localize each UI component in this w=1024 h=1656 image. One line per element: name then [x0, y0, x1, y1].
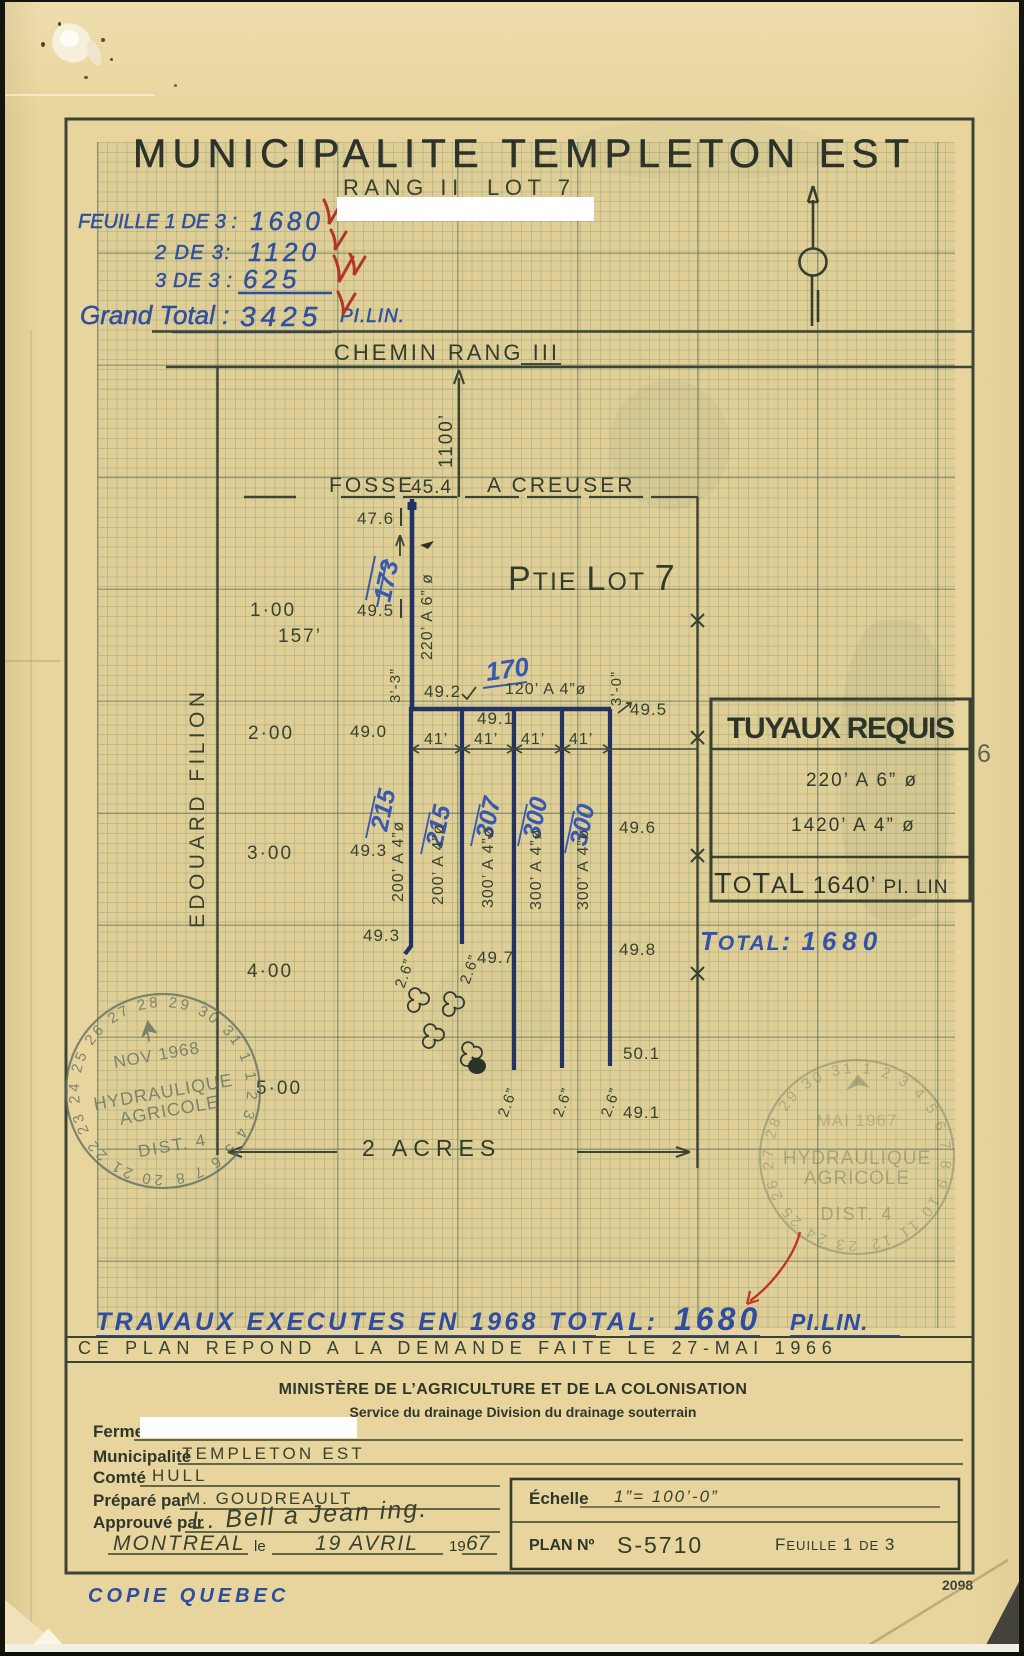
svg-text:1100’: 1100’: [436, 413, 457, 468]
svg-text:EDOUARD FILION: EDOUARD FILION: [186, 688, 209, 928]
svg-text:PTIE LOT 7: PTIE LOT 7: [508, 557, 677, 598]
svg-text:2.6”: 2.6”: [495, 1085, 521, 1119]
svg-text:Comté: Comté: [93, 1468, 146, 1487]
svg-text:1·00: 1·00: [250, 600, 296, 621]
svg-text:200’ A 4”ø: 200’ A 4”ø: [430, 824, 447, 905]
svg-text:49.8: 49.8: [619, 940, 656, 959]
svg-text:1”= 100’-0”: 1”= 100’-0”: [614, 1487, 719, 1506]
svg-text:67: 67: [466, 1532, 491, 1555]
svg-text:1420’ A 4” ø: 1420’ A 4” ø: [791, 815, 916, 836]
svg-text:DIST. 4: DIST. 4: [820, 1204, 893, 1224]
svg-text:DIST. 4: DIST. 4: [137, 1130, 209, 1161]
svg-text:6: 6: [977, 740, 991, 768]
svg-text:41’: 41’: [521, 731, 545, 748]
svg-text:MAI 1967: MAI 1967: [817, 1111, 898, 1130]
svg-text:49.6: 49.6: [619, 818, 656, 837]
svg-text:TOTAL: 1680: TOTAL: 1680: [700, 926, 883, 956]
svg-text:47.6: 47.6: [357, 509, 394, 528]
svg-text:Préparé par: Préparé par: [93, 1491, 188, 1510]
svg-text:MUNICIPALITE TEMPLETON EST: MUNICIPALITE TEMPLETON EST: [133, 132, 917, 176]
svg-text:41’: 41’: [569, 731, 593, 748]
svg-text:RANG II LOT 7: RANG II LOT 7: [343, 175, 573, 200]
svg-text:MONTREAL: MONTREAL: [113, 1532, 246, 1555]
svg-text:2.6”: 2.6”: [598, 1085, 624, 1119]
svg-text:220’ A 6” ø: 220’ A 6” ø: [806, 770, 918, 791]
svg-text:HYDRAULIQUE: HYDRAULIQUE: [783, 1148, 931, 1169]
svg-text:41’: 41’: [474, 731, 498, 748]
svg-text:TRAVAUX EXECUTES EN 1968 TOTAL: TRAVAUX EXECUTES EN 1968 TOTAL: 1680 PI.…: [96, 1301, 869, 1337]
svg-text:Échelle: Échelle: [529, 1489, 589, 1508]
svg-text:45.4: 45.4: [411, 477, 452, 498]
svg-text:200’ A 4”ø: 200’ A 4”ø: [390, 821, 407, 902]
svg-text:FEUILLE 1 DE 3 :: FEUILLE 1 DE 3 :: [78, 211, 238, 233]
svg-text:HULL: HULL: [152, 1466, 207, 1485]
svg-text:19: 19: [449, 1538, 466, 1555]
svg-text:3·00: 3·00: [247, 843, 293, 864]
svg-text:le: le: [254, 1538, 266, 1555]
svg-text:Ferme: Ferme: [93, 1422, 144, 1441]
svg-text:300’ A 4”ø: 300’ A 4”ø: [575, 829, 592, 910]
svg-text:PI.LIN.: PI.LIN.: [340, 306, 405, 327]
svg-text:157’: 157’: [278, 626, 322, 647]
svg-text:TUYAUX REQUIS: TUYAUX REQUIS: [727, 712, 957, 745]
svg-text:3 DE 3 :: 3 DE 3 :: [155, 270, 233, 292]
svg-text:3’-0”: 3’-0”: [608, 671, 625, 706]
svg-text:FEUILLE 1 DE 3: FEUILLE 1 DE 3: [775, 1535, 895, 1554]
svg-text:4·00: 4·00: [247, 961, 293, 982]
svg-text:TOTAL 1640’ PI. LIN: TOTAL 1640’ PI. LIN: [714, 868, 949, 900]
svg-text:3’-3”: 3’-3”: [387, 668, 404, 703]
svg-text:1120: 1120: [248, 237, 320, 267]
svg-text:CHEMIN RANG III: CHEMIN RANG III: [334, 340, 562, 365]
svg-text:300’ A 4”ø: 300’ A 4”ø: [528, 829, 545, 910]
svg-text:49.5: 49.5: [630, 700, 667, 719]
svg-text:A CREUSER: A CREUSER: [487, 474, 635, 497]
svg-text:S-5710: S-5710: [617, 1532, 703, 1558]
svg-text:CE PLAN REPOND A LA DEMANDE FA: CE PLAN REPOND A LA DEMANDE FAITE LE 27-…: [78, 1338, 834, 1358]
svg-text:49.1: 49.1: [623, 1103, 660, 1122]
svg-text:20 21 22 23 24 25 26 27 28 29: 20 21 22 23 24 25 26 27 28 29 30 31 1 1 …: [0, 0, 260, 1188]
svg-text:FOSSE: FOSSE: [329, 474, 415, 497]
svg-text:49.0: 49.0: [350, 722, 387, 741]
svg-text:220’ A 6” ø: 220’ A 6” ø: [419, 573, 436, 660]
svg-text:Grand Total :: Grand Total :: [80, 300, 229, 330]
svg-text:Approuvé par: Approuvé par: [93, 1513, 204, 1532]
svg-text:625: 625: [243, 264, 301, 294]
svg-text:5·00: 5·00: [256, 1078, 302, 1099]
svg-text:300’ A 4”ø: 300’ A 4”ø: [480, 827, 497, 908]
svg-text:19 AVRIL: 19 AVRIL: [315, 1532, 419, 1555]
svg-text:49.3: 49.3: [350, 841, 387, 860]
svg-text:2.6”: 2.6”: [457, 952, 483, 986]
svg-text:MINISTÈRE DE L’AGRICULTURE ET: MINISTÈRE DE L’AGRICULTURE ET DE LA COLO…: [279, 1379, 748, 1398]
svg-text:COPIE QUEBEC: COPIE QUEBEC: [88, 1585, 289, 1607]
svg-text:1680: 1680: [250, 206, 324, 236]
svg-text:2·00: 2·00: [248, 723, 294, 744]
svg-text:NOV 1968: NOV 1968: [112, 1038, 201, 1072]
svg-text:2.6”: 2.6”: [550, 1085, 576, 1119]
svg-text:49.1: 49.1: [477, 709, 514, 728]
svg-text:Service du drainage Division d: Service du drainage Division du drainage…: [350, 1404, 697, 1420]
svg-text:Municipalité: Municipalité: [93, 1447, 191, 1466]
svg-text:49.2: 49.2: [424, 682, 461, 701]
svg-text:49.7: 49.7: [477, 948, 514, 967]
svg-text:PLAN Nº: PLAN Nº: [529, 1537, 595, 1554]
svg-text:120’ A 4”ø: 120’ A 4”ø: [505, 681, 586, 698]
svg-text:AGRICOLE: AGRICOLE: [804, 1168, 910, 1189]
svg-text:3425: 3425: [240, 301, 322, 332]
svg-text:50.1: 50.1: [623, 1044, 660, 1063]
svg-text:2 ACRES: 2 ACRES: [362, 1135, 501, 1161]
svg-text:TEMPLETON EST: TEMPLETON EST: [182, 1444, 365, 1463]
svg-text:41’: 41’: [424, 731, 448, 748]
svg-text:49.3: 49.3: [363, 926, 400, 945]
svg-text:49.5: 49.5: [357, 601, 394, 620]
svg-text:2.6”: 2.6”: [392, 956, 418, 990]
svg-text:2 DE 3:: 2 DE 3:: [154, 242, 231, 264]
